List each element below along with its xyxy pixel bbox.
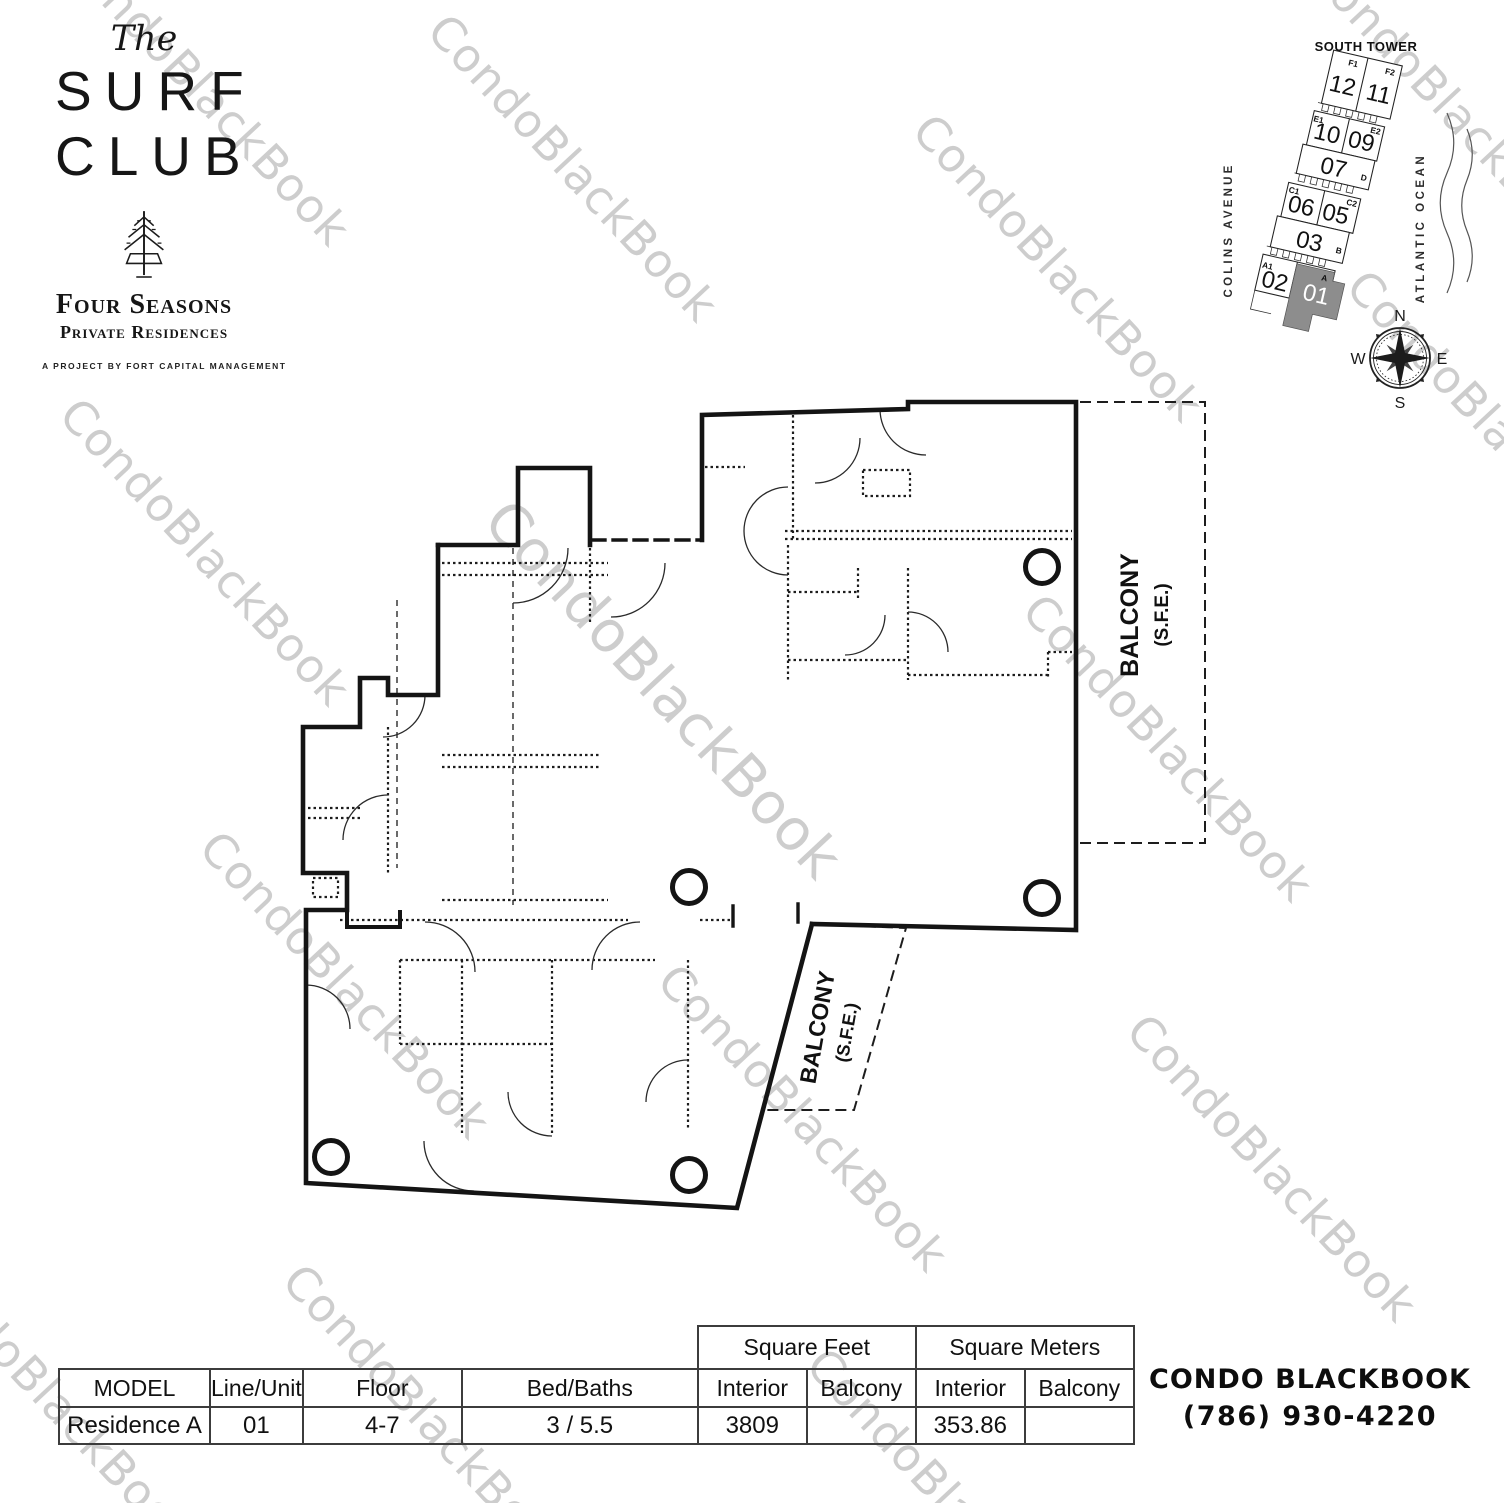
balcony-label-right: BALCONY (S.F.E.)	[1116, 553, 1173, 677]
group-header-square-meters: Square Meters	[916, 1326, 1134, 1369]
table-header-row: MODEL Line/Unit Floor Bed/Baths Interior…	[59, 1369, 1134, 1407]
cell-bed-baths: 3 / 5.5	[462, 1407, 698, 1444]
compass-w: W	[1350, 351, 1366, 368]
group-header-square-feet: Square Feet	[698, 1326, 916, 1369]
street-label-atlantic-ocean: ATLANTIC OCEAN	[1415, 153, 1427, 303]
structural-columns	[315, 551, 1059, 1192]
col-header-model: MODEL	[59, 1369, 210, 1407]
keyplan-title: SOUTH TOWER	[1315, 39, 1418, 54]
balcony-bottom-title: BALCONY	[795, 969, 840, 1086]
project-logo: The SURF CLUB Four Seasons Private Resid…	[42, 22, 246, 371]
cell-model: Residence A	[59, 1407, 210, 1444]
logo-club: CLUB	[42, 124, 246, 189]
street-label-colins-avenue: COLINS AVENUE	[1223, 163, 1235, 298]
col-header-interior-sf: Interior	[698, 1369, 807, 1407]
balcony-bottom-subtitle: (S.F.E.)	[832, 1001, 862, 1064]
cell-line-unit: 01	[210, 1407, 303, 1444]
unit-spec-table: Square Feet Square Meters MODEL Line/Uni…	[58, 1325, 1135, 1445]
exterior-walls	[303, 402, 1076, 1208]
project-credit: A PROJECT BY FORT CAPITAL MANAGEMENT	[42, 361, 246, 371]
logo-the: The	[42, 22, 246, 57]
dashed-guides	[397, 548, 513, 905]
compass-s: S	[1395, 395, 1406, 412]
logo-surf: SURF	[42, 59, 246, 124]
keyplan: SOUTH TOWER 12	[1195, 25, 1500, 437]
floorplan-sheet: CondoBlackBook CondoBlackBook CondoBlack…	[0, 0, 1504, 1503]
ocean-waves	[1440, 113, 1472, 293]
door-swings	[306, 409, 948, 1191]
balcony-right-subtitle: (S.F.E.)	[1152, 583, 1173, 646]
tower-stack: 12 11 10 09 07 06 05 03 02 01 F1 F2 E1 E…	[1248, 45, 1402, 339]
four-seasons-tree-icon	[113, 205, 175, 287]
four-seasons-wordmark: Four Seasons	[42, 291, 246, 319]
condo-blackbook-phone: (786) 930-4220	[1110, 1401, 1504, 1432]
table-spacer	[59, 1326, 698, 1369]
private-residences-label: Private Residences	[42, 323, 246, 341]
compass-rose: N S W E	[1350, 308, 1447, 412]
balcony-right-title: BALCONY	[1116, 553, 1144, 677]
col-header-floor: Floor	[303, 1369, 462, 1407]
interior-partitions	[308, 415, 1072, 1136]
compass-e: E	[1437, 351, 1448, 368]
col-header-line-unit: Line/Unit	[210, 1369, 303, 1407]
table-row: Residence A 01 4-7 3 / 5.5 3809 353.86	[59, 1407, 1134, 1444]
watermark-text: CondoBlackBook	[902, 103, 1214, 432]
cell-interior-sm: 353.86	[916, 1407, 1025, 1444]
watermark-text: CondoBlackBook	[417, 3, 729, 332]
col-header-interior-sm: Interior	[916, 1369, 1025, 1407]
cell-interior-sf: 3809	[698, 1407, 807, 1444]
col-header-balcony-sf: Balcony	[807, 1369, 916, 1407]
cell-floor: 4-7	[303, 1407, 462, 1444]
condo-blackbook-brand: CONDO BLACKBOOK	[1110, 1364, 1504, 1395]
condo-blackbook-contact: CONDO BLACKBOOK (786) 930-4220	[1110, 1364, 1504, 1432]
floor-plan: BALCONY (S.F.E.) BALCONY (S.F.E.)	[285, 390, 1215, 1270]
table-group-header-row: Square Feet Square Meters	[59, 1326, 1134, 1369]
compass-n: N	[1394, 308, 1406, 325]
balcony-label-bottom: BALCONY (S.F.E.)	[795, 969, 867, 1090]
col-header-bed-baths: Bed/Baths	[462, 1369, 698, 1407]
cell-balcony-sf	[807, 1407, 916, 1444]
